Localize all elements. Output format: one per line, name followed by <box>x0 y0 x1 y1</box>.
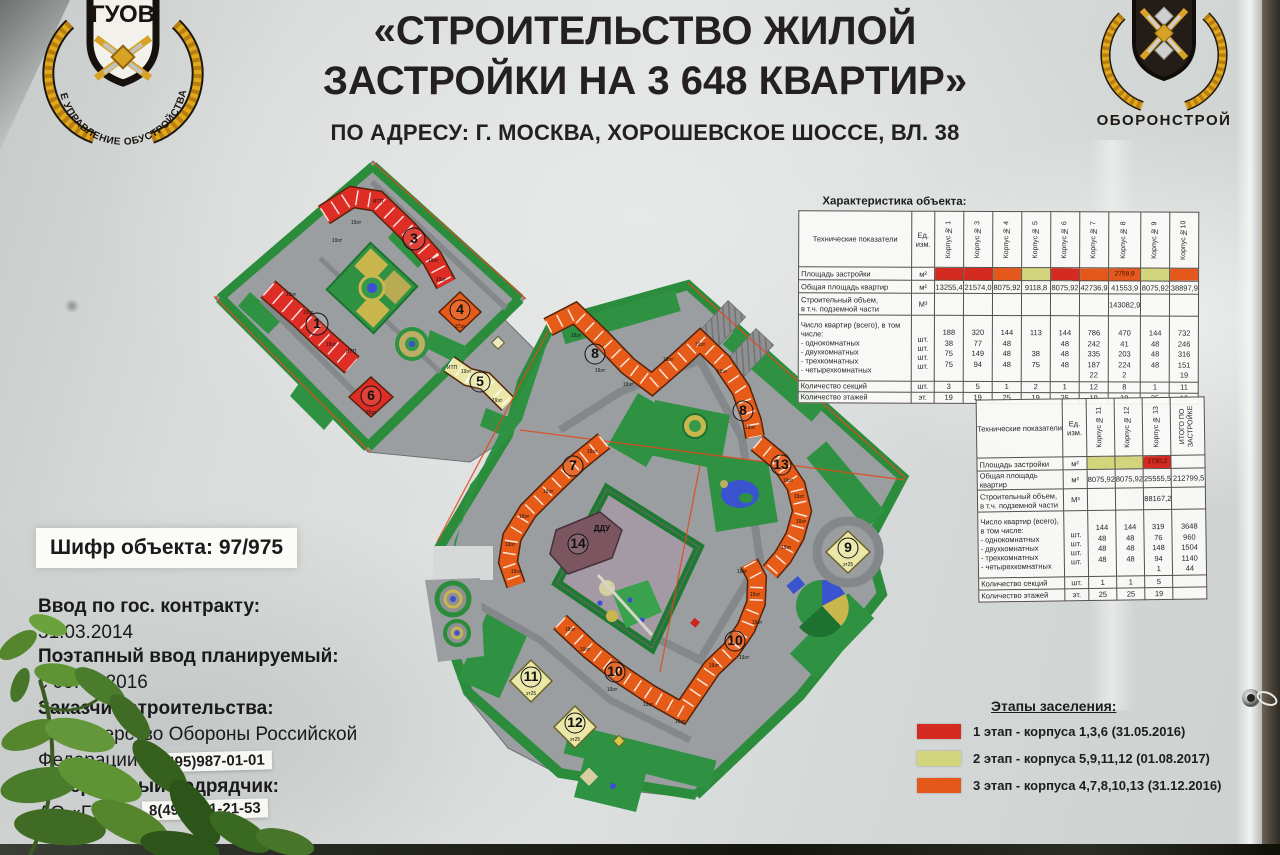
table-cell: 1 <box>1140 382 1169 393</box>
building-number-circle <box>563 456 583 476</box>
characteristics-table-2: Технические показателиЕд. изм.Корпус № 1… <box>976 396 1208 602</box>
map-annotation: 19эт <box>286 292 297 298</box>
table-cell: м² <box>1063 470 1087 489</box>
map-labels: 314567889101011121314ДДУ27эт25этэт25эт25… <box>286 199 858 743</box>
oboronstroy-name: ОБОРОНСТРОЙ <box>1078 112 1250 129</box>
table-cell: М³ <box>1063 489 1087 511</box>
table-cell: Корпус № 11 <box>1086 398 1115 456</box>
legend: Этапы заселения: 1 этап - корпуса 1,3,6 … <box>905 698 1275 805</box>
banner-smudge <box>64 299 80 313</box>
table-cell: Корпус № 13 <box>1142 397 1171 455</box>
table-cell <box>935 267 964 280</box>
legend-swatch <box>917 724 961 739</box>
guov-shield-text: ГУОВ <box>91 1 155 28</box>
map-annotation: 19эт <box>752 620 763 626</box>
characteristics-table-1: Характеристика объекта: Технические пока… <box>798 195 1200 404</box>
table-cell: Технические показатели <box>799 211 912 267</box>
map-annotation: 19эт <box>607 687 618 693</box>
map-annotation: 19эт <box>781 545 792 551</box>
map-annotation: эт25 <box>843 562 854 568</box>
table-cell: Площадь застройки <box>799 267 912 280</box>
map-annotation: 19эт <box>326 342 337 348</box>
table-cell: Корпус № 4 <box>993 211 1022 267</box>
column-header: ИТОГО ПО ЗАСТРОЙКЕ <box>1179 405 1196 447</box>
table-cell: Корпус № 9 <box>1141 212 1170 268</box>
map-annotation: 19эт <box>332 238 343 244</box>
table-cell: ИТОГО ПО ЗАСТРОЙКЕ <box>1170 397 1205 455</box>
legend-text: 1 этап - корпуса 1,3,6 (31.05.2016) <box>973 724 1185 739</box>
building-number-label: 14 <box>570 535 586 551</box>
table-cell: 8075,92 <box>1051 281 1080 294</box>
map-annotation: 19эт <box>595 368 606 374</box>
map-annotation: 19эт <box>511 569 522 575</box>
table-cell: шт. <box>911 381 934 392</box>
map-annotation: 19эт <box>663 357 674 363</box>
building-number-circle <box>585 344 605 364</box>
building-number-circle <box>306 313 328 335</box>
table-cell: Количество этажей <box>979 589 1065 602</box>
column-header: Корпус №10 <box>1180 220 1189 259</box>
table-cell: м² <box>912 267 935 280</box>
building-number-label: 13 <box>773 456 789 472</box>
building-number-label: 3 <box>410 230 418 246</box>
column-header: Корпус № 6 <box>1061 221 1070 258</box>
table-cell <box>1079 294 1108 316</box>
table-cell: М³ <box>911 293 934 315</box>
table-cell: 1 <box>1117 576 1145 588</box>
map-annotation: 19эт <box>737 569 748 575</box>
map-annotation: 19эт <box>587 449 598 455</box>
table-cell <box>1173 575 1207 587</box>
table-cell: 144484848 <box>1141 316 1170 382</box>
poster-title: «СТРОИТЕЛЬСТВО ЖИЛОЙ ЗАСТРОЙКИ НА 3 648 … <box>230 6 1060 146</box>
table-cell: 212799,5 <box>1171 468 1205 487</box>
table-cell <box>1080 268 1109 281</box>
table-cell: 1 <box>992 381 1021 392</box>
map-annotation: 19эт <box>623 382 634 388</box>
table-cell <box>1173 587 1207 599</box>
table-cell: Строительный объем, в т.ч. подземной час… <box>798 293 911 315</box>
map-annotation: 19эт <box>565 627 576 633</box>
table-cell: Корпус № 7 <box>1080 212 1109 268</box>
table-cell: 1133875 <box>1021 316 1050 382</box>
table-cell: 11 <box>1169 382 1198 393</box>
object-code-box: Шифр объекта: 97/975 <box>36 528 297 568</box>
table-cell: Площадь застройки <box>977 457 1063 471</box>
map-annotation: эт25 <box>570 737 581 743</box>
table-cell <box>993 267 1022 280</box>
table-cell: 8075,92 <box>993 280 1022 293</box>
legend-text: 2 этап - корпуса 5,9,11,12 (01.08.2017) <box>973 751 1210 766</box>
map-annotation: 19эт <box>794 494 805 500</box>
building-number-label: 12 <box>567 714 583 730</box>
table-cell: 12 <box>1079 382 1108 393</box>
table-cell: 78624233518722 <box>1079 316 1108 382</box>
table-cell: Корпус № 5 <box>1022 212 1051 268</box>
building-number-circle <box>361 386 381 406</box>
building-number-label: 7 <box>569 457 577 473</box>
building-number-circle <box>568 534 588 554</box>
table-cell: 5 <box>1145 575 1173 587</box>
building-number-circle <box>605 662 625 682</box>
map-annotation: 19эт <box>571 333 582 339</box>
table-cell: 41553,9 <box>1109 281 1141 294</box>
building-number-circle <box>521 667 541 687</box>
building-number-circle <box>733 401 753 421</box>
table-cell: Корпус № 12 <box>1114 398 1143 456</box>
building-number-label: 10 <box>727 632 743 648</box>
legend-title: Этапы заселения: <box>991 698 1275 714</box>
table-cell: м² <box>912 280 935 293</box>
table: Технические показателиЕд. изм.Корпус № 1… <box>976 396 1208 602</box>
table-cell: 144484848 <box>992 315 1021 381</box>
title-line-2: ЗАСТРОЙКИ НА 3 648 КВАРТИР» <box>230 56 1060 106</box>
table-cell: Ед. изм. <box>1062 399 1087 457</box>
building-number-circle <box>838 538 858 558</box>
table-cell <box>992 293 1021 315</box>
table-cell: 144484848 <box>1088 510 1117 576</box>
table-cell: 21574,0 <box>964 280 993 293</box>
table-cell: Корпус № 3 <box>964 211 993 267</box>
table-cell: 19 <box>1145 587 1173 599</box>
table-cell: шт. шт. шт. шт. <box>911 315 934 381</box>
building-number-label: 5 <box>476 373 484 389</box>
legend-swatch <box>917 778 961 793</box>
table-cell: м² <box>1063 457 1087 470</box>
table-cell: 8075,92 <box>1087 469 1115 488</box>
legend-item: 3 этап - корпуса 4,7,8,10,13 (31.12.2016… <box>917 778 1275 793</box>
table-cell: 8075,92 <box>1115 469 1143 488</box>
column-header: Корпус № 5 <box>1032 221 1041 258</box>
table-cell: 13255,4 <box>935 280 964 293</box>
building-number-label: 11 <box>524 668 539 684</box>
map-annotation: 19эт <box>675 719 686 725</box>
table-cell: Количество секций <box>798 381 911 392</box>
table-cell: Ед. изм. <box>912 211 935 267</box>
table-cell: 19 <box>934 392 963 403</box>
map-annotation: ИТП <box>346 349 357 355</box>
table-cell: 3 <box>934 381 963 392</box>
table-cell <box>1170 268 1199 281</box>
column-header: Корпус № 11 <box>1096 407 1105 448</box>
map-annotation: 19эт <box>543 489 554 495</box>
table-cell: 73224631615119 <box>1170 316 1199 382</box>
table-cell <box>1087 456 1115 469</box>
map-annotation: 19эт <box>783 478 794 484</box>
building-number-label: 9 <box>844 539 852 555</box>
table-cell <box>1021 294 1050 316</box>
table-cell: 144484848 <box>1050 316 1079 382</box>
table-cell <box>1115 456 1143 469</box>
column-header: Корпус № 13 <box>1152 406 1161 447</box>
table-cell: 470412032242 <box>1108 316 1141 382</box>
banner-photo: 314567889101011121314ДДУ27эт25этэт25эт25… <box>0 0 1280 855</box>
column-header: Корпус № 7 <box>1090 221 1099 258</box>
map-annotation: 25эт <box>366 410 377 416</box>
legend-text: 3 этап - корпуса 4,7,8,10,13 (31.12.2016… <box>973 778 1221 793</box>
building-number-label: 8 <box>739 402 747 418</box>
table-cell <box>964 267 993 280</box>
table-cell: 42736,9 <box>1080 281 1109 294</box>
table-cell <box>1141 268 1170 281</box>
table-cell: 3207714994 <box>963 315 992 381</box>
table-cell <box>1051 268 1080 281</box>
legend-swatch <box>917 751 961 766</box>
building-number-circle <box>771 455 791 475</box>
table-cell <box>934 293 963 315</box>
table-cell: 2759,9 <box>1109 268 1141 281</box>
map-annotation: 19эт <box>303 310 314 316</box>
building-number-label: 8 <box>591 345 599 361</box>
map-annotation: 19эт <box>750 592 761 598</box>
column-header: Корпус № 12 <box>1124 406 1133 447</box>
column-header: Корпус № 3 <box>974 221 983 258</box>
address-line: ПО АДРЕСУ: Г. МОСКВА, ХОРОШЕВСКОЕ ШОССЕ,… <box>230 120 1060 146</box>
column-header: Корпус № 8 <box>1121 221 1130 258</box>
table-cell: Количество этажей <box>798 392 911 403</box>
table-cell: 31976148941 <box>1144 509 1173 575</box>
map-annotation: 19эт <box>695 342 706 348</box>
table-cell: 9118,8 <box>1022 281 1051 294</box>
table-cell: Число квартир (всего), в том числе: - од… <box>798 315 911 381</box>
column-header: Корпус № 9 <box>1151 221 1160 258</box>
title-line-1: «СТРОИТЕЛЬСТВО ЖИЛОЙ <box>230 6 1060 56</box>
table-cell: Число квартир (всего), в том числе: - од… <box>978 511 1065 578</box>
column-header: Корпус № 4 <box>1003 221 1012 258</box>
map-annotation: 19эт <box>505 542 516 548</box>
legend-item: 2 этап - корпуса 5,9,11,12 (01.08.2017) <box>917 751 1275 766</box>
table-cell <box>1170 294 1199 316</box>
map-annotation: 19эт <box>436 277 447 283</box>
map-annotation: 19эт <box>519 514 530 520</box>
table-cell <box>1022 268 1051 281</box>
map-annotation: 19эт <box>717 369 728 375</box>
table-1-caption: Характеристика объекта: <box>822 195 1199 208</box>
table-cell: Корпус № 1 <box>935 211 964 267</box>
table-cell: шт. <box>1065 577 1089 589</box>
table-cell: 144484848 <box>1116 510 1145 576</box>
table-cell <box>1087 488 1115 510</box>
table-cell: Корпус №10 <box>1170 212 1199 268</box>
legend-item: 1 этап - корпуса 1,3,6 (31.05.2016) <box>917 724 1275 739</box>
table: Технические показателиЕд. изм.Корпус № 1… <box>798 210 1200 404</box>
table-cell: 143082,9 <box>1108 294 1140 316</box>
map-annotation: 19эт <box>351 220 362 226</box>
cluster-a <box>214 161 540 462</box>
guov-logo: ГУОВ ГЛАВНОЕ УПРАВЛЕНИЕ ОБУСТРОЙСТВА ВОЙ… <box>26 0 218 168</box>
map-annotation: 19эт <box>745 425 756 431</box>
map-annotation: 27эт <box>455 324 466 330</box>
table-cell: 2 <box>1021 382 1050 393</box>
table-cell: 188387575 <box>934 315 963 381</box>
map-annotation: 19эт <box>580 647 591 653</box>
map-annotation: 19эт <box>461 369 472 375</box>
plant-leaves <box>0 565 340 855</box>
table-cell: 25 <box>1089 588 1117 600</box>
map-annotation: ДДУ <box>594 524 611 533</box>
building-number-label: 10 <box>607 663 623 679</box>
map-annotation: 19эт <box>796 519 807 525</box>
table-cell: Общая площадь квартир <box>799 280 912 293</box>
table-cell: Общая площадь квартир <box>977 470 1063 490</box>
table-cell: 25 <box>1117 588 1145 600</box>
table-cell: Технические показатели <box>976 399 1063 458</box>
building-number-label: 1 <box>313 315 321 331</box>
table-cell: эт. <box>911 392 934 403</box>
map-annotation: 19эт <box>643 702 654 708</box>
building-number-circle <box>403 228 425 250</box>
table-cell: 1 <box>1050 382 1079 393</box>
map-annotation: 19эт <box>739 655 750 661</box>
map-annotation: ИТП <box>373 199 384 205</box>
table-cell <box>1050 294 1079 316</box>
building-number-label: 6 <box>367 387 375 403</box>
map-annotation: эт25 <box>526 691 537 697</box>
building-number-circle <box>725 631 745 651</box>
table-cell: 88167,2 <box>1144 487 1172 509</box>
building-number-circle <box>565 713 585 733</box>
table-cell <box>1141 294 1170 316</box>
table-cell <box>963 293 992 315</box>
table-cell: 1730,2 <box>1143 455 1171 468</box>
table-cell: 38897,9 <box>1170 281 1199 294</box>
column-header: Корпус № 1 <box>945 221 954 258</box>
building-number-circle <box>470 372 490 392</box>
table-cell <box>1115 488 1143 510</box>
map-annotation: 19эт <box>428 258 439 264</box>
building-number-label: 4 <box>456 301 464 317</box>
table-cell: Корпус № 6 <box>1051 212 1080 268</box>
table-cell <box>1172 487 1206 509</box>
table-cell: 8 <box>1108 382 1140 393</box>
building-number-circle <box>450 300 470 320</box>
table-cell: 5 <box>963 381 992 392</box>
table-cell: 8075,92 <box>1141 281 1170 294</box>
table-cell: Корпус № 8 <box>1109 212 1141 268</box>
map-annotation: ИТП <box>447 365 458 371</box>
map-annotation: 19эт <box>492 398 503 404</box>
table-cell: шт. шт. шт. шт. <box>1064 511 1089 577</box>
table-cell <box>1171 455 1205 468</box>
table-cell: 36489601504114044 <box>1172 509 1207 575</box>
map-annotation: 19эт <box>709 663 720 669</box>
table-cell: 25555,5 <box>1143 468 1171 487</box>
table-cell: Строительный объем, в т.ч. подземной час… <box>977 489 1063 512</box>
table-cell: 1 <box>1089 576 1117 588</box>
table-cell: эт. <box>1065 589 1089 601</box>
